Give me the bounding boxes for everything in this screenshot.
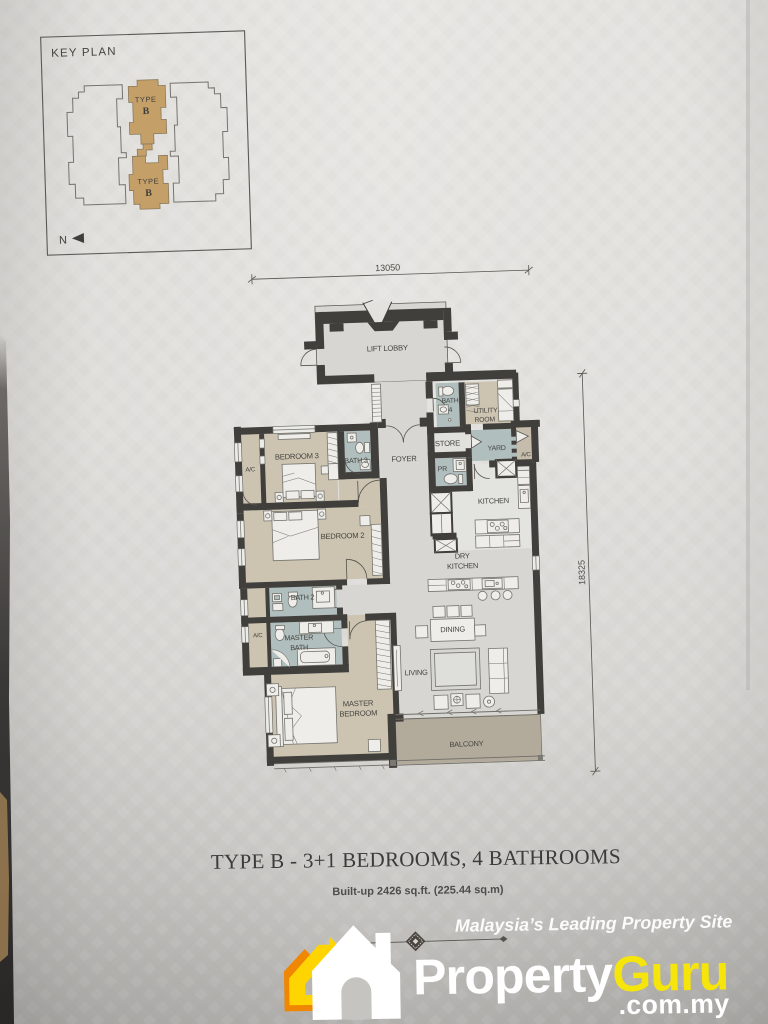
svg-text:STORE: STORE: [435, 438, 460, 448]
svg-text:4: 4: [448, 407, 452, 414]
svg-text:Built-up 2426 sq.ft. (225.44 s: Built-up 2426 sq.ft. (225.44 sq.m): [332, 884, 504, 898]
svg-text:DRY: DRY: [455, 551, 470, 560]
svg-text:MASTER: MASTER: [284, 632, 313, 642]
svg-text:BEDROOM: BEDROOM: [339, 708, 377, 718]
svg-text:TYPE: TYPE: [137, 177, 159, 187]
svg-text:BATH 2: BATH 2: [291, 592, 315, 602]
svg-text:B: B: [143, 106, 150, 117]
svg-text:BATH: BATH: [442, 397, 459, 405]
svg-text:KITCHEN: KITCHEN: [447, 561, 478, 571]
svg-text:UTILITY: UTILITY: [473, 407, 498, 415]
svg-text:TYPE: TYPE: [135, 95, 157, 105]
svg-text:A/C: A/C: [245, 466, 256, 473]
svg-text:N: N: [59, 235, 67, 247]
svg-text:18325: 18325: [576, 560, 587, 585]
svg-text:PR: PR: [438, 466, 448, 473]
svg-text:.com.my: .com.my: [618, 988, 729, 1020]
svg-text:LIVING: LIVING: [404, 668, 428, 678]
svg-text:DINING: DINING: [440, 624, 465, 634]
svg-text:KEY PLAN: KEY PLAN: [51, 46, 117, 60]
svg-text:BATH 3: BATH 3: [344, 456, 368, 466]
svg-text:13050: 13050: [375, 262, 400, 273]
svg-text:BATH: BATH: [290, 643, 308, 653]
svg-text:MASTER: MASTER: [343, 698, 374, 708]
svg-text:B: B: [145, 188, 152, 199]
svg-text:A/C: A/C: [253, 633, 263, 639]
svg-text:FOYER: FOYER: [391, 454, 417, 464]
svg-text:BEDROOM 2: BEDROOM 2: [320, 531, 364, 541]
svg-text:KITCHEN: KITCHEN: [478, 496, 509, 506]
svg-text:ROOM: ROOM: [474, 416, 495, 424]
svg-text:LIFT LOBBY: LIFT LOBBY: [367, 343, 408, 353]
svg-text:BALCONY: BALCONY: [449, 739, 483, 749]
svg-text:YARD: YARD: [488, 445, 506, 453]
svg-text:A/C: A/C: [521, 452, 531, 458]
svg-text:BEDROOM 3: BEDROOM 3: [275, 451, 319, 461]
